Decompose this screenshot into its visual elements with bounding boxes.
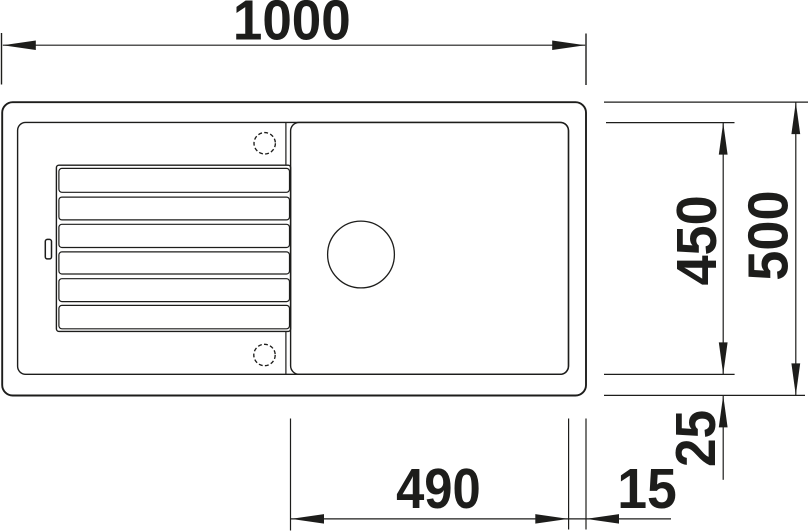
svg-text:450: 450 [665,195,729,285]
svg-text:490: 490 [396,457,481,520]
svg-text:15: 15 [617,457,677,521]
svg-text:500: 500 [736,190,800,280]
svg-text:1000: 1000 [233,0,351,52]
